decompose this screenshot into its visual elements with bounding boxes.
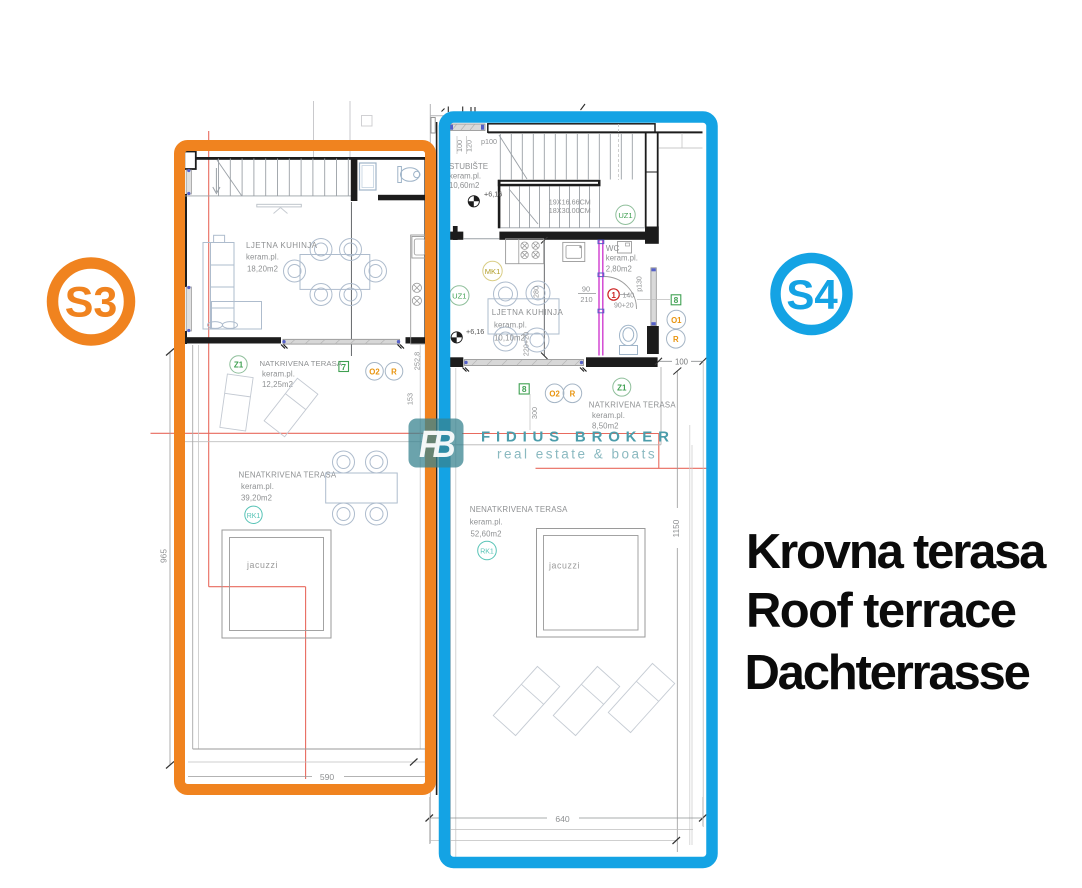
- svg-text:STUBIŠTE: STUBIŠTE: [449, 162, 488, 171]
- svg-text:90: 90: [582, 285, 590, 294]
- svg-text:1: 1: [611, 291, 616, 300]
- svg-text:Krovna terasa: Krovna terasa: [746, 525, 1047, 579]
- svg-text:R: R: [673, 335, 679, 344]
- svg-text:Dachterrasse: Dachterrasse: [745, 646, 1030, 700]
- svg-text:140: 140: [623, 293, 635, 300]
- svg-text:120: 120: [465, 140, 474, 152]
- svg-text:280: 280: [532, 286, 541, 298]
- svg-text:965: 965: [159, 549, 169, 563]
- svg-text:NATKRIVENA TERASA: NATKRIVENA TERASA: [589, 401, 677, 410]
- svg-text:keram.pl.: keram.pl.: [241, 482, 274, 491]
- svg-text:2,80m2: 2,80m2: [606, 265, 632, 274]
- svg-text:Z1: Z1: [617, 383, 627, 392]
- svg-text:jacuzzi: jacuzzi: [246, 560, 278, 570]
- svg-text:FIDIUS BROKER: FIDIUS BROKER: [481, 429, 675, 446]
- svg-text:210: 210: [580, 295, 592, 304]
- svg-text:O1: O1: [671, 316, 682, 325]
- svg-text:Roof terrace: Roof terrace: [746, 584, 1016, 638]
- svg-text:100: 100: [455, 140, 464, 152]
- svg-text:252,8: 252,8: [413, 352, 422, 371]
- svg-text:keram.pl.: keram.pl.: [606, 254, 638, 263]
- svg-text:O2: O2: [369, 367, 380, 376]
- svg-text:90+20: 90+20: [614, 303, 634, 310]
- svg-text:Z1: Z1: [234, 361, 244, 370]
- svg-text:R: R: [391, 367, 397, 376]
- svg-text:LJETNA KUHINJA: LJETNA KUHINJA: [492, 308, 564, 317]
- svg-text:S4: S4: [786, 271, 838, 318]
- svg-text:NENATKRIVENA TERASA: NENATKRIVENA TERASA: [239, 471, 337, 480]
- svg-text:100: 100: [675, 358, 689, 367]
- svg-text:1150: 1150: [672, 519, 681, 537]
- svg-text:keram.pl.: keram.pl.: [470, 518, 503, 527]
- svg-text:p100: p100: [481, 137, 497, 146]
- svg-text:NENATKRIVENA TERASA: NENATKRIVENA TERASA: [470, 505, 568, 514]
- svg-text:LJETNA KUHINJA: LJETNA KUHINJA: [246, 241, 318, 250]
- svg-text:keram.pl.: keram.pl.: [449, 172, 481, 181]
- svg-text:39,20m2: 39,20m2: [241, 494, 272, 503]
- svg-text:10,60m2: 10,60m2: [449, 181, 479, 190]
- svg-text:keram.pl.: keram.pl.: [262, 370, 295, 379]
- svg-text:UZ1: UZ1: [618, 211, 632, 220]
- svg-text:18,20m2: 18,20m2: [247, 265, 278, 274]
- svg-text:153: 153: [406, 393, 415, 405]
- svg-text:keram.pl.: keram.pl.: [592, 411, 625, 420]
- svg-text:+6,16: +6,16: [466, 327, 484, 336]
- svg-text:12,25m2: 12,25m2: [262, 380, 293, 389]
- svg-text:7: 7: [341, 362, 346, 372]
- svg-text:590: 590: [320, 772, 335, 782]
- svg-text:jacuzzi: jacuzzi: [548, 561, 580, 571]
- svg-text:8: 8: [674, 295, 679, 305]
- svg-text:RK1: RK1: [247, 513, 261, 520]
- svg-text:WC: WC: [606, 244, 620, 253]
- svg-text:p130: p130: [637, 276, 644, 292]
- svg-text:8: 8: [522, 384, 527, 394]
- svg-text:RK1: RK1: [480, 549, 494, 556]
- svg-text:NATKRIVENA TERASA: NATKRIVENA TERASA: [260, 359, 343, 368]
- svg-text:R: R: [570, 390, 576, 399]
- svg-text:220+20: 220+20: [521, 332, 530, 356]
- svg-text:keram.pl.: keram.pl.: [246, 253, 279, 262]
- svg-text:keram.pl.: keram.pl.: [494, 321, 527, 330]
- svg-text:O2: O2: [549, 390, 560, 399]
- svg-text:MK1: MK1: [485, 267, 501, 276]
- svg-text:+6,16: +6,16: [484, 190, 502, 199]
- svg-text:640: 640: [555, 814, 570, 824]
- svg-text:18X30.00CM: 18X30.00CM: [549, 206, 591, 215]
- svg-text:S3: S3: [65, 279, 118, 327]
- svg-text:real estate & boats: real estate & boats: [497, 447, 657, 462]
- svg-text:300: 300: [530, 407, 539, 419]
- svg-text:52,60m2: 52,60m2: [471, 530, 502, 539]
- svg-text:UZ1: UZ1: [452, 292, 466, 301]
